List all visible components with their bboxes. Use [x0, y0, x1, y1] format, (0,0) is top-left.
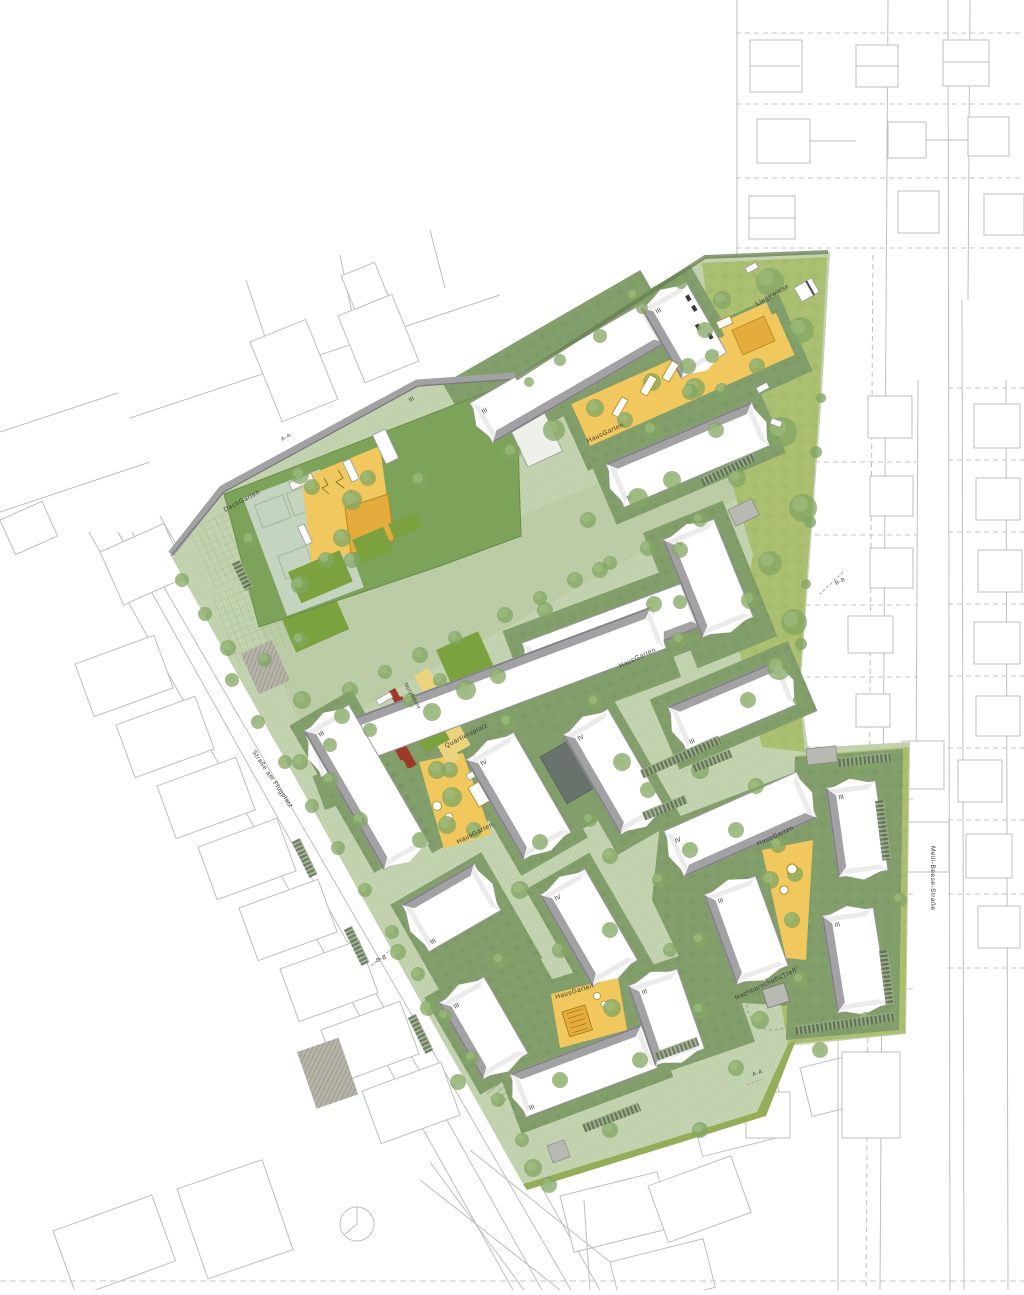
svg-text:Meili-Beese-Straße: Meili-Beese-Straße	[929, 846, 936, 911]
